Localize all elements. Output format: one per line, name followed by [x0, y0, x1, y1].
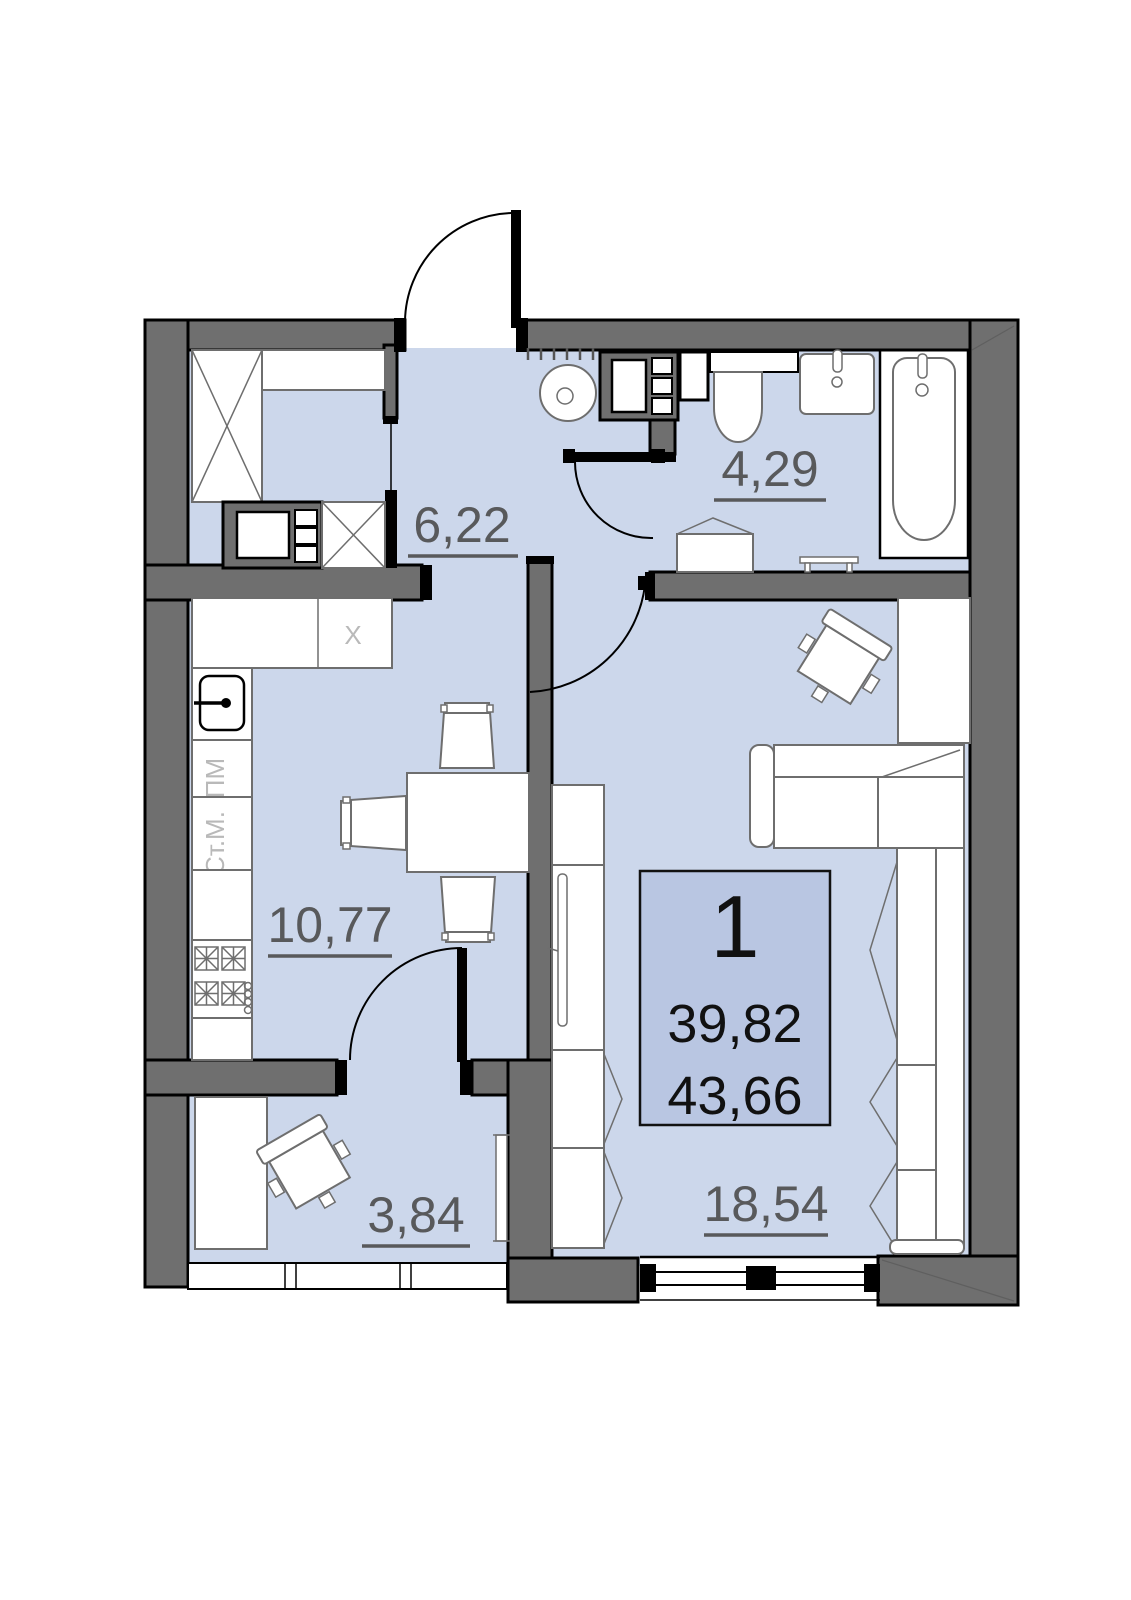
- counter-cell-bottom: [192, 1018, 252, 1060]
- cabinet-window-band: [188, 1263, 507, 1289]
- hallway-shelf: [262, 350, 385, 390]
- tv: [558, 874, 567, 1026]
- central-wall-cap: [526, 556, 554, 564]
- living-area-value: 39,82: [667, 994, 802, 1054]
- hallway-appliance-2: [600, 352, 678, 420]
- right-wall: [970, 320, 1018, 1305]
- counter-cell: [192, 870, 252, 940]
- dining-chair-left: [341, 796, 406, 850]
- dining-chair-top: [440, 703, 494, 768]
- bathtub: [893, 354, 955, 540]
- sofa-chaise-2: [897, 1065, 936, 1170]
- hallway-partition-bar: [385, 490, 397, 568]
- sofa-seat: [774, 777, 878, 848]
- top-wall-right: [518, 320, 1018, 350]
- dining-chair-bottom: [441, 877, 495, 942]
- kitchen-bottom-wall: [145, 1060, 337, 1095]
- pouf-center: [557, 388, 573, 404]
- kitchen-top-wall-cap: [420, 565, 432, 600]
- entrance-door-leaf: [511, 210, 521, 328]
- hallway-appliance: [223, 502, 322, 568]
- kitchen-counter-top: [192, 598, 392, 668]
- room-label-hallway: 6,22: [413, 497, 510, 553]
- toilet-bowl: [714, 372, 762, 442]
- kitchen-sink-cabinet: [192, 668, 252, 740]
- sofa-chaise-1: [897, 848, 936, 1065]
- central-wall-foot: [508, 1258, 638, 1302]
- bathroom-door-leaf: [575, 452, 653, 462]
- room-label-living: 18,54: [703, 1176, 828, 1232]
- central-wall-upper: [528, 560, 552, 1062]
- sofa-armrest-left: [750, 745, 774, 847]
- bathroom-wall-stub: [650, 420, 675, 454]
- bathroom-door-jamb: [563, 449, 575, 463]
- toilet-tank: [710, 352, 798, 372]
- cabinet-radiator: [493, 1135, 510, 1241]
- stove: [192, 940, 252, 1018]
- bathroom-door-hinge: [651, 449, 665, 463]
- living-top-wall: [650, 572, 970, 600]
- room-label-cabinet: 3,84: [367, 1187, 464, 1243]
- kitchen-top-wall: [145, 565, 422, 600]
- dishwasher-label: ПМ: [200, 758, 230, 798]
- floor-plan-page: X ПМ Ст.М.: [0, 0, 1131, 1600]
- entrance-door-swing: [405, 213, 511, 321]
- floor-plan: X ПМ Ст.М.: [0, 0, 1131, 1600]
- living-window-sash: [746, 1266, 776, 1290]
- total-area-value: 43,66: [667, 1066, 802, 1126]
- fridge-label: X: [344, 620, 361, 650]
- sofa-back-right: [936, 848, 964, 1248]
- entrance-jamb-left: [394, 318, 406, 352]
- sofa-corner-seat: [878, 777, 964, 848]
- sofa-armrest-bottom: [890, 1240, 964, 1254]
- kitchen-bottom-wall-cap: [335, 1060, 347, 1095]
- duct-shaft: [680, 352, 708, 400]
- hallway-partition-cap: [383, 416, 398, 424]
- dining-table: [407, 773, 529, 872]
- living-window-jamb-right: [864, 1264, 880, 1292]
- left-wall: [145, 320, 188, 1287]
- unit-number: 1: [711, 877, 760, 976]
- cabinet-desk: [195, 1097, 267, 1249]
- cabinet-door-jamb: [460, 1060, 472, 1095]
- living-desk: [898, 598, 970, 743]
- living-window-jamb-left: [640, 1264, 656, 1292]
- room-label-bathroom: 4,29: [721, 441, 818, 497]
- info-box: 1 39,82 43,66: [640, 871, 830, 1126]
- bathroom-sink: [800, 350, 874, 414]
- room-label-kitchen: 10,77: [267, 897, 392, 953]
- central-wall-lower: [508, 1060, 552, 1260]
- washer-label: Ст.М.: [200, 811, 230, 875]
- sofa-back-top: [774, 745, 964, 777]
- cabinet-door-leaf: [457, 948, 467, 1062]
